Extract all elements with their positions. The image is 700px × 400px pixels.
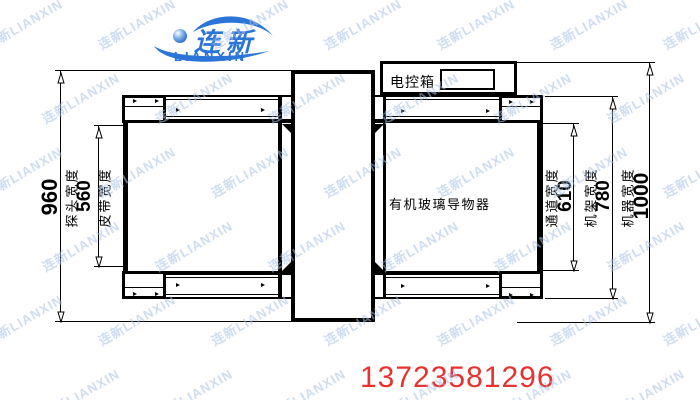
watermark-text: 连新LIANXIN xyxy=(320,0,405,53)
contact-phone-number: 13723581296 xyxy=(360,361,555,395)
watermark-text: 连新LIANXIN xyxy=(151,216,236,276)
control-box: 电控箱 xyxy=(380,61,517,95)
watermark-text: 连新LIANXIN xyxy=(0,0,66,53)
ext-line xyxy=(55,70,291,71)
watermark-text: 连新LIANXIN xyxy=(151,364,236,400)
watermark-text: 连新LIANXIN xyxy=(38,68,123,128)
dim-arrow-up xyxy=(57,71,65,89)
dim-arrow-dn xyxy=(95,255,103,273)
dim-arrow-up xyxy=(609,97,617,115)
dim-arrow-dn xyxy=(570,259,578,277)
detector-head-box xyxy=(291,70,375,322)
watermark-text: 连新LIANXIN xyxy=(377,216,462,276)
dim-arrow-dn xyxy=(609,287,617,305)
end-block-top-left xyxy=(122,95,166,123)
dim-value-probe-width: 960 xyxy=(37,122,63,272)
ext-line xyxy=(55,321,291,322)
dim-arrow-dn xyxy=(646,311,654,329)
end-block-top-right xyxy=(499,95,543,123)
corner-wedge xyxy=(282,262,291,271)
control-box-label: 电控箱 xyxy=(390,72,435,92)
acrylic-guide-label: 有机玻璃导物器 xyxy=(389,194,491,213)
technical-drawing-page: 连新 LIANXIN 电控箱 有机玻璃导物器 xyxy=(0,0,700,400)
control-box-window xyxy=(440,69,495,90)
top-rail-strip-left xyxy=(165,99,279,117)
logo-english-name: LIANXIN xyxy=(174,49,247,64)
acrylic-guide-line xyxy=(383,95,386,299)
watermark-text: 连新LIANXIN xyxy=(659,290,700,350)
end-block-divider xyxy=(502,287,540,288)
corner-wedge xyxy=(282,124,291,133)
watermark-text: 连新LIANXIN xyxy=(659,142,700,202)
dim-value-channel-width: 610 xyxy=(555,121,577,271)
watermark-text: 连新LIANXIN xyxy=(433,0,518,53)
watermark-text: 连新LIANXIN xyxy=(603,364,688,400)
belt-left-edge xyxy=(123,123,128,271)
watermark-text: 连新LIANXIN xyxy=(433,142,518,202)
end-block-divider xyxy=(125,287,163,288)
watermark-text: 连新LIANXIN xyxy=(264,364,349,400)
end-block-bottom-right xyxy=(499,271,543,299)
ext-line xyxy=(517,322,655,323)
dim-arrow-up xyxy=(95,126,103,144)
watermark-text: 连新LIANXIN xyxy=(38,364,123,400)
dim-arrow-up xyxy=(570,124,578,142)
dim-label-belt-width: 皮带宽度 xyxy=(95,123,114,273)
dim-arrow-dn xyxy=(57,310,65,328)
dim-value-machine-width: 1000 xyxy=(630,121,654,271)
dim-value-frame-width: 780 xyxy=(593,121,615,271)
belt-inner-line-left xyxy=(278,95,282,299)
ext-line xyxy=(545,96,618,97)
ext-line xyxy=(517,62,655,63)
watermark-text: 连新LIANXIN xyxy=(546,0,631,53)
company-logo: 连新 LIANXIN xyxy=(148,5,318,65)
dim-arrow-up xyxy=(646,63,654,81)
top-rail-strip-right xyxy=(386,99,502,117)
end-block-bottom-left xyxy=(122,271,166,299)
dim-value-belt-width: 560 xyxy=(74,121,96,271)
watermark-text: 连新LIANXIN xyxy=(659,0,700,53)
end-block-divider xyxy=(125,106,163,107)
end-block-divider xyxy=(502,106,540,107)
ext-line xyxy=(545,298,618,299)
logo-dot-icon xyxy=(173,29,187,43)
